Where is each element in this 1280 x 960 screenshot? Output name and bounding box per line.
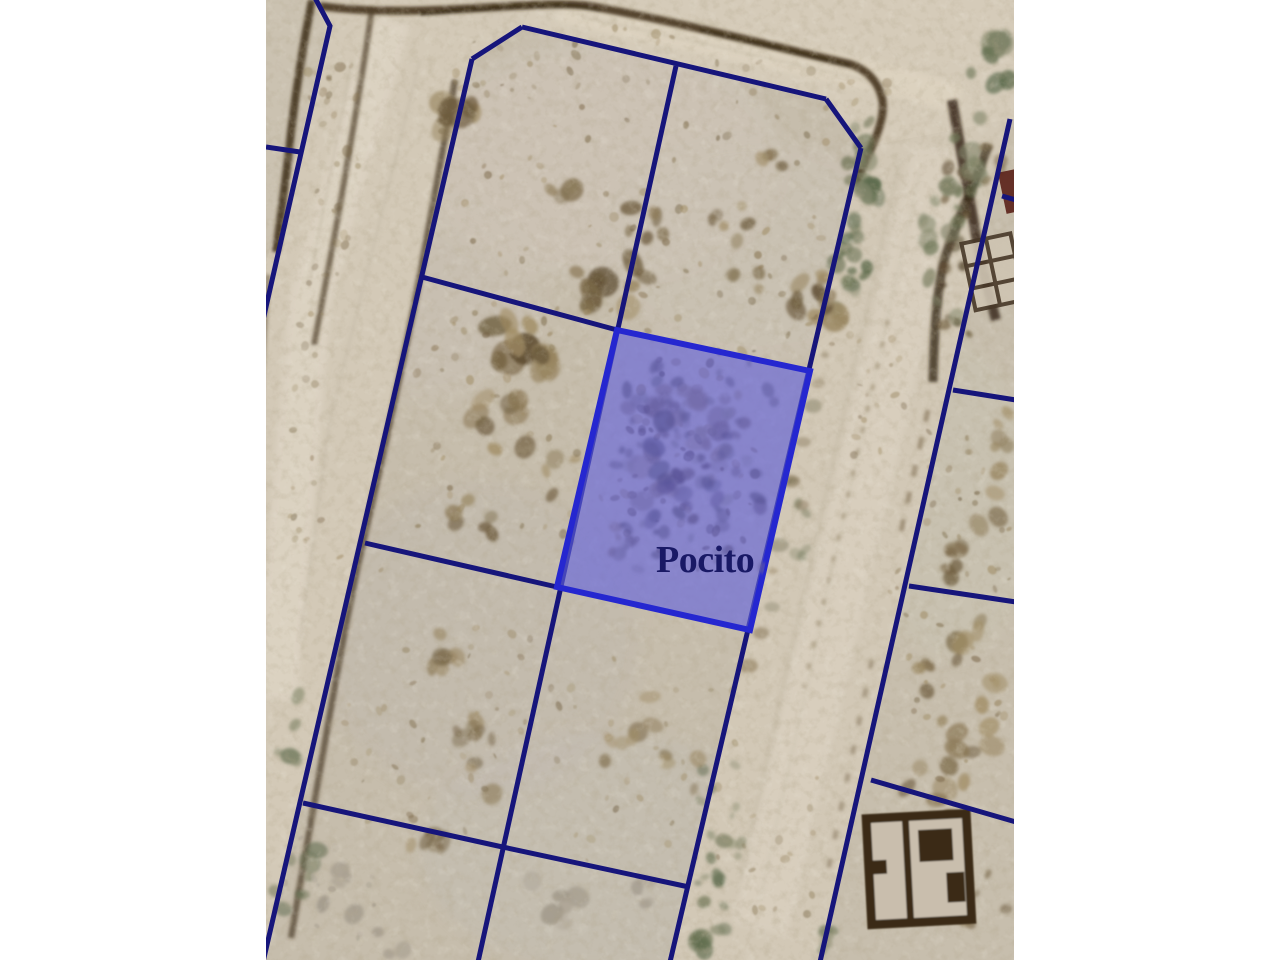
svg-text:Pocito: Pocito	[656, 539, 754, 581]
